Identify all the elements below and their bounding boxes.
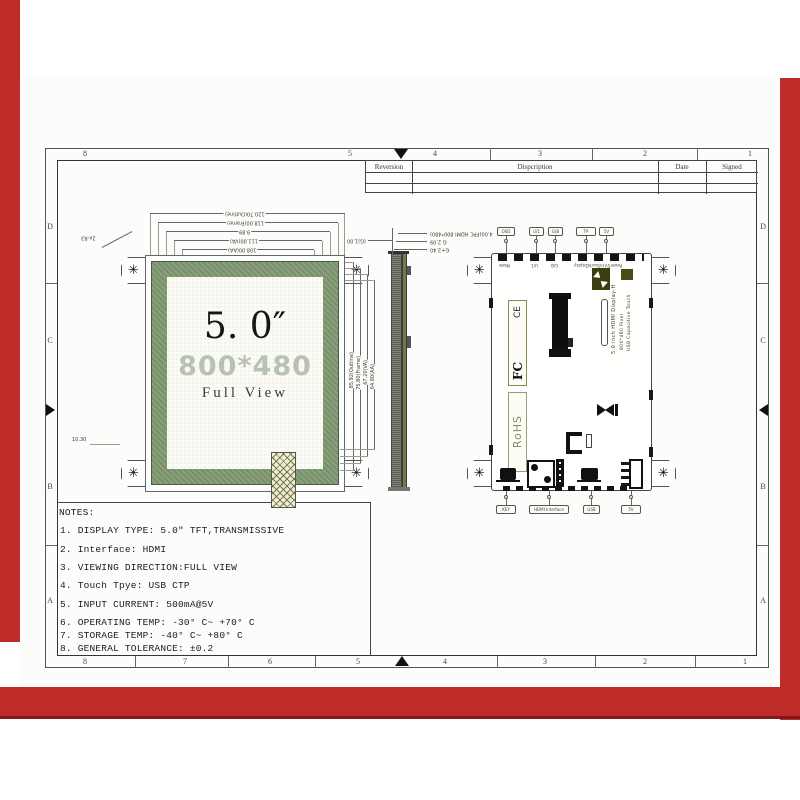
connector-callout: TP <box>576 227 596 236</box>
zone-number: 8 <box>79 657 91 667</box>
bowtie-mark <box>597 404 617 417</box>
title-block-header-reversion: Reversion <box>366 161 412 172</box>
frame-bottom-shadow <box>0 716 800 719</box>
mounting-ear: ✳ <box>121 257 146 284</box>
leader-line <box>368 240 392 241</box>
hdmi-connector-tab <box>568 338 573 347</box>
dimension-label: 118.00(Frame) <box>226 219 265 225</box>
zone-tick <box>45 545 57 546</box>
note-line: 3. VIEWING DIRECTION:FULL VIEW <box>60 562 237 573</box>
zone-letter: D <box>757 222 769 232</box>
extension-line <box>174 241 175 255</box>
connector-callout: U/1 <box>529 227 544 236</box>
title-block-line <box>366 172 758 173</box>
extension-line <box>150 214 151 255</box>
zone-tick <box>315 656 316 668</box>
decorative-shape <box>605 404 614 416</box>
zone-letter: C <box>44 336 56 346</box>
title-block-header-date: Date <box>658 161 706 172</box>
fcc-mark: FC <box>511 362 525 380</box>
leader-dot <box>553 239 557 243</box>
zone-number: 2 <box>639 149 651 159</box>
note-line: 5. INPUT CURRENT: 500mA@5V <box>60 599 213 610</box>
tact-button <box>500 468 516 480</box>
leader-dot <box>504 239 508 243</box>
pcb-edge-nub <box>649 447 653 457</box>
side-view-foot <box>388 487 410 491</box>
leader-dot <box>547 495 551 499</box>
pin-header <box>556 459 564 487</box>
rohs-box: RoHS <box>508 392 527 472</box>
zone-tick <box>595 656 596 668</box>
extension-line <box>345 274 368 275</box>
extension-line <box>166 232 167 255</box>
zone-number: 3 <box>539 657 551 667</box>
notes-box-line <box>370 502 371 656</box>
note-line: 7. STORAGE TEMP: -40° C~ +80° C <box>60 630 243 641</box>
connector-callout: OSD <box>497 227 515 236</box>
connector-callout: USB <box>583 505 600 514</box>
zone-tick <box>592 148 593 160</box>
zone-tick <box>697 148 698 160</box>
page: { "colors": { "frame_red": "#bf2b28", "f… <box>0 0 800 800</box>
leader-line <box>90 444 120 445</box>
extension-line <box>340 456 368 457</box>
leader-dot <box>584 239 588 243</box>
dimension-label: 67.20(VA) <box>364 360 370 385</box>
connector-callout: KEY <box>496 505 516 514</box>
silk-label: U/1 <box>531 263 538 268</box>
side-view-bump <box>407 266 411 275</box>
small-slot <box>586 434 592 448</box>
note-line: 6. OPERATING TEMP: -30° C~ +70° C <box>60 617 255 628</box>
pcb-edge-nub <box>489 298 493 308</box>
zone-number: 2 <box>639 657 651 667</box>
extension-line <box>322 241 323 255</box>
decorative-shape <box>559 474 561 476</box>
zone-number: 8 <box>79 149 91 159</box>
decorative-shape <box>598 278 608 288</box>
silk-label: G/B <box>551 263 558 268</box>
board-subtitle-text: 800*480 Pixel <box>620 288 625 350</box>
screw-icon: ✳ <box>658 264 669 277</box>
side-view-glass <box>391 253 402 490</box>
extension-line <box>340 449 375 450</box>
decorative-shape <box>615 404 618 416</box>
silk-label: Mode <box>499 263 510 268</box>
zone-letter: D <box>44 222 56 232</box>
board-title-text: 5.0 inch HDMI Display-H <box>611 272 617 354</box>
zone-number: 1 <box>739 657 751 667</box>
screw-icon: ✳ <box>474 467 485 480</box>
zone-letter: B <box>757 482 769 492</box>
extension-line <box>345 268 361 269</box>
extension-line <box>345 262 354 263</box>
extension-line <box>340 463 361 464</box>
zone-tick <box>490 148 491 160</box>
center-marker-right <box>759 404 768 416</box>
tact-button <box>581 468 598 480</box>
zone-number: 1 <box>744 149 756 159</box>
mounting-ear: ✳ <box>651 257 676 284</box>
screw-icon: ✳ <box>128 467 139 480</box>
screw-icon: ✳ <box>474 264 485 277</box>
dimension-label: G 2.09 <box>429 238 448 244</box>
usb-slot <box>601 299 608 346</box>
decorative-shape <box>531 464 538 471</box>
extension-line <box>314 250 315 255</box>
zone-letter: B <box>44 482 56 492</box>
title-block: Reversion Dispcription Date Signed <box>365 160 757 193</box>
side-view-pcb <box>402 253 407 490</box>
extension-line <box>392 228 393 254</box>
cert-box: CE FC <box>508 300 527 386</box>
frame-left <box>0 0 20 642</box>
bracket-component <box>566 432 582 454</box>
connector-callout: G/B <box>548 227 563 236</box>
hdmi-connector-bottom <box>549 349 571 357</box>
decorative-shape <box>559 480 561 482</box>
dimension-label: 111.00(VA) <box>229 237 259 243</box>
pcb-bottom-pads <box>503 486 627 491</box>
leader-dot <box>604 239 608 243</box>
screen-view-label: Full View <box>167 385 323 402</box>
dimension-label: 108.00(AA) <box>227 246 257 252</box>
dimension-label: 75.80(Frame) <box>357 356 363 390</box>
zone-number: 7 <box>179 657 191 667</box>
zone-letter: A <box>44 596 56 606</box>
frame-right <box>780 78 800 720</box>
note-line: 1. DISPLAY TYPE: 5.0″ TFT,TRANSMISSIVE <box>60 525 284 536</box>
pcb-edge-nub <box>489 445 493 455</box>
zone-tick <box>135 656 136 668</box>
leader-line <box>396 241 427 242</box>
power-pin <box>621 476 629 479</box>
power-pin <box>621 469 629 472</box>
left-note-label: 10.30 <box>72 438 86 444</box>
zone-tick <box>497 656 498 668</box>
mounting-ear: ✳ <box>651 460 676 487</box>
zone-tick <box>45 283 57 284</box>
touch-fpc-tail <box>271 452 296 508</box>
button-base <box>496 480 520 482</box>
zone-letter: A <box>757 596 769 606</box>
note-line: 2. Interface: HDMI <box>60 544 166 555</box>
zone-letter: C <box>757 336 769 346</box>
connector-callout: 5V <box>621 505 641 514</box>
connector-callout: HDMI Interface <box>529 505 569 514</box>
zone-number: 3 <box>534 149 546 159</box>
extension-line <box>338 223 339 255</box>
extension-line <box>344 214 345 255</box>
button-base <box>577 480 601 482</box>
frame-bottom <box>0 687 800 718</box>
decorative-shape <box>566 450 582 454</box>
zone-tick <box>695 656 696 668</box>
decorative-shape <box>544 476 551 483</box>
extension-line <box>340 470 354 471</box>
extension-line <box>330 232 331 255</box>
zone-number: 6 <box>264 657 276 667</box>
dimension-label: 85.92(Outline) <box>350 352 356 388</box>
zone-tick <box>228 656 229 668</box>
center-marker-top <box>394 149 408 159</box>
extension-line <box>182 250 183 255</box>
screw-icon: ✳ <box>128 264 139 277</box>
screen-resolution-label: 800*480 <box>167 351 323 382</box>
center-marker-left <box>46 404 55 416</box>
title-block-header-signed: Signed <box>706 161 758 172</box>
note-line: 8. GENERAL TOLERANCE: ±0.2 <box>60 643 213 654</box>
extension-line <box>158 223 159 255</box>
corner-note-label: 2x-R3 <box>80 234 97 240</box>
screw-icon: ✳ <box>658 467 669 480</box>
leader-dot <box>534 239 538 243</box>
center-marker-bottom <box>395 656 409 666</box>
zone-number: 5 <box>352 657 364 667</box>
pcb-edge-nub <box>649 298 653 308</box>
mounting-ear: ✳ <box>121 460 146 487</box>
note-line: 4. Touch Tpye: USB CTP <box>60 580 190 591</box>
title-block-line <box>366 183 758 184</box>
zone-number: 4 <box>429 149 441 159</box>
hdmi-port <box>527 460 555 488</box>
board-subtitle-text: USB Capacitive Touch <box>627 285 632 351</box>
connector-callout: 5V <box>599 227 614 236</box>
mounting-ear: ✳ <box>344 460 369 487</box>
dimension-label: (G)1.00 <box>346 237 367 243</box>
pcb-edge-nub <box>649 390 653 400</box>
decorative-shape <box>559 462 561 464</box>
dimension-label: G+2.40 <box>429 246 450 252</box>
zone-tick <box>757 283 769 284</box>
power-connector <box>629 459 643 489</box>
title-block-header-description: Dispcription <box>412 161 658 172</box>
decorative-shape <box>559 468 561 470</box>
rohs-mark: RoHS <box>511 415 524 448</box>
dimension-label: 4.00(FPC HDMI 800*480) <box>429 230 494 236</box>
mounting-ear: ✳ <box>467 460 492 487</box>
zone-tick <box>757 545 769 546</box>
mounting-ear: ✳ <box>467 257 492 284</box>
side-view-bump <box>407 336 411 348</box>
notes-title: NOTES: <box>59 507 94 518</box>
extension-line <box>345 280 375 281</box>
leader-dot <box>629 495 633 499</box>
hdmi-connector-body <box>552 296 568 352</box>
dimension-label: 64.80(AA) <box>371 364 377 389</box>
power-pin <box>621 462 629 465</box>
power-pin <box>621 483 629 486</box>
pcb-top-pads <box>498 254 644 261</box>
zone-number: 5 <box>344 149 356 159</box>
zone-number: 4 <box>439 657 451 667</box>
leader-dot <box>589 495 593 499</box>
speaker-pad <box>592 268 610 290</box>
ce-mark: CE <box>513 306 523 318</box>
leader-line <box>394 249 427 250</box>
dimension-label: 120.70(Outline) <box>224 210 266 216</box>
component-pad <box>621 269 633 280</box>
leader-dot <box>504 495 508 499</box>
leader-line <box>398 233 427 234</box>
dimension-label: 9.89 <box>238 228 251 234</box>
screen-size-label: 5. 0″ <box>167 306 323 347</box>
notes-box-line <box>57 502 370 503</box>
